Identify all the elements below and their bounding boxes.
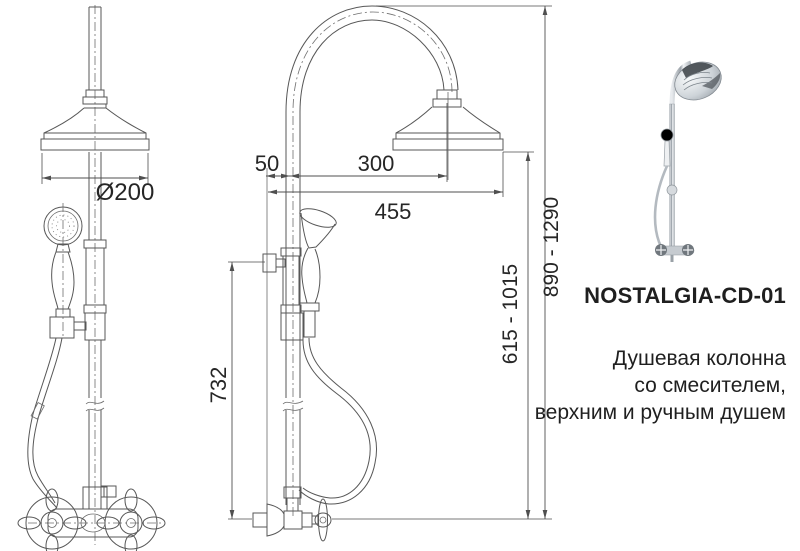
front-hose (28, 338, 62, 508)
product-description-line-2: со смесителем, (506, 372, 786, 399)
product-code: NOSTALGIA-CD-01 (506, 283, 786, 309)
photo-riser (670, 104, 675, 252)
side-mixer-wall-stub (253, 513, 267, 527)
front-hand-shower (44, 203, 86, 338)
side-cross-handle (315, 499, 331, 541)
side-mixer (253, 487, 331, 541)
front-diverter-knob (101, 486, 116, 497)
handle-blade-top (125, 489, 137, 511)
dim-732-label: 732 (206, 367, 231, 404)
hand-shower-holder-cup (50, 317, 86, 338)
dim-300: 300 (290, 151, 447, 176)
side-handle-center (320, 517, 326, 523)
product-description-line-1: Душевая колонна (506, 345, 786, 372)
side-hose (299, 338, 377, 504)
side-riser-and-arc (286, 6, 458, 505)
product-description-line-3: верхним и ручным душем (506, 399, 786, 426)
side-mixer-hose-nut (284, 487, 301, 511)
photo-hand-shower-handle (664, 141, 670, 166)
side-mixer-flange (267, 504, 284, 536)
side-shower-head (393, 92, 503, 180)
bracket-arm (276, 259, 285, 267)
side-cone-body (301, 213, 335, 248)
dim-455-label: 455 (375, 199, 412, 224)
photo-hand-shower-head (661, 129, 673, 141)
dim-890-1290: 890 - 1290 (540, 6, 563, 519)
handle-blade-top (46, 489, 58, 511)
diameter-dimension: Ø200 (42, 153, 154, 206)
side-hand-shower (298, 205, 339, 337)
dimensions: 50 300 455 732 615 - 1015 890 - 1290 (206, 6, 563, 519)
product-photo (638, 40, 750, 280)
side-view (253, 6, 503, 541)
side-cone-opening (298, 205, 339, 231)
wall-bracket (263, 254, 285, 272)
front-mixer (18, 486, 165, 551)
side-mixer-body (284, 511, 318, 529)
diameter-label: Ø200 (96, 179, 155, 206)
product-photo-render (638, 40, 750, 280)
dim-300-label: 300 (358, 151, 395, 176)
product-info: NOSTALGIA-CD-01 Душевая колонна со смеси… (506, 283, 786, 426)
catalog-page: Ø200 (0, 0, 800, 551)
dim-50-label: 50 (255, 151, 279, 176)
front-view: Ø200 (18, 5, 165, 551)
bracket-plate (263, 254, 276, 272)
dim-732: 732 (206, 262, 232, 519)
dim-50: 50 (255, 151, 290, 176)
extension-lines (228, 6, 552, 519)
photo-slider-knob (667, 185, 677, 195)
hose-clip (31, 403, 44, 420)
side-center-line (293, 12, 452, 516)
side-handle-hub (315, 513, 331, 527)
